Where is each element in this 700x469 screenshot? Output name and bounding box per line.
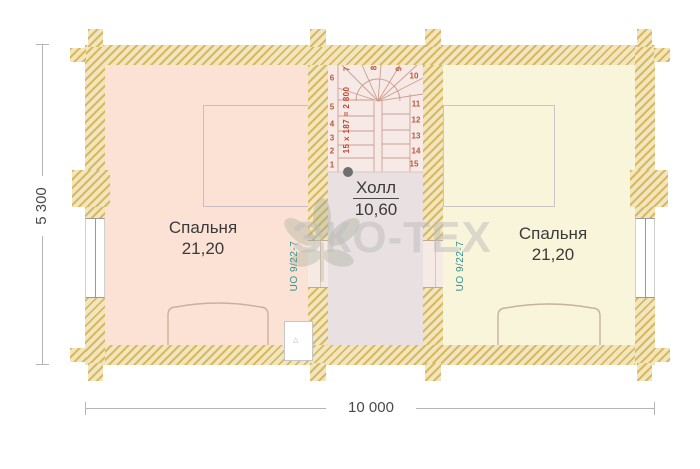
log-cross <box>70 348 86 362</box>
bed-left <box>168 303 268 345</box>
room-name: Холл <box>353 177 399 199</box>
dimension-label-vertical: 5 300 <box>34 176 50 236</box>
interior-wall-right-lower <box>423 288 443 345</box>
stair-step-number: 3 <box>330 134 334 143</box>
stair-formula-label: 15 x 187 = 2 800 <box>341 77 351 163</box>
room-label-bedroom-right: Спальня 21,20 <box>483 223 623 265</box>
log-cross <box>88 29 103 47</box>
stair-step-number: 8 <box>370 66 379 70</box>
stair-step-number: 6 <box>330 74 334 83</box>
log-cross <box>425 363 441 381</box>
room-area: 21,20 <box>532 245 575 264</box>
stair-step-number: 12 <box>412 116 421 125</box>
drain-icon: △ <box>293 336 298 344</box>
stair-step-number: 1 <box>330 161 334 170</box>
window-left <box>85 218 105 298</box>
stair-step-number: 15 <box>410 160 419 169</box>
log-cross <box>637 363 652 381</box>
stair-step-number: 11 <box>412 100 420 109</box>
dimension-tick <box>85 402 86 415</box>
room-label-bedroom-left: Спальня 21,20 <box>133 217 273 259</box>
room-name: Спальня <box>169 217 237 238</box>
wall-bottom <box>85 345 655 365</box>
stair-step-number: 13 <box>412 132 421 141</box>
interior-wall-left-upper <box>308 65 328 240</box>
log-cross <box>630 170 668 207</box>
bed-right <box>498 304 600 345</box>
log-cross <box>310 363 326 381</box>
room-area: 21,20 <box>182 239 225 258</box>
log-cross <box>654 48 670 62</box>
log-cross <box>425 29 441 47</box>
stair-step-number: 14 <box>412 147 421 156</box>
log-cross <box>88 363 103 381</box>
dimension-tick <box>36 364 49 365</box>
window-right <box>635 218 655 298</box>
door-opening-right <box>423 240 443 288</box>
interior-wall-right-upper <box>423 65 443 240</box>
floor-plan: △ Спальня 21,20 Холл 10,60 Спальня 21,20… <box>0 0 700 469</box>
newel-post <box>343 167 353 177</box>
stair-step-number: 4 <box>330 120 334 129</box>
door-opening-left <box>308 240 328 288</box>
room-area: 10,60 <box>355 200 398 219</box>
room-name: Спальня <box>519 223 587 244</box>
log-cross <box>310 29 326 47</box>
stair-step-number: 9 <box>395 67 404 71</box>
stair-step-number: 5 <box>330 103 334 112</box>
dimension-tick <box>654 402 655 415</box>
wall-top <box>85 45 655 65</box>
stair-step-number: 10 <box>410 72 419 81</box>
dimension-label-horizontal: 10 000 <box>326 400 416 416</box>
stair-step-number: 7 <box>343 67 352 71</box>
log-cross <box>637 29 652 47</box>
log-cross <box>70 48 86 62</box>
log-cross <box>72 170 110 207</box>
heating-label-right: UO 9/22-7 <box>454 231 466 301</box>
room-label-hall: Холл 10,60 <box>326 177 426 220</box>
dimension-tick <box>36 44 49 45</box>
shower-unit: △ <box>284 321 313 361</box>
stair-step-number: 2 <box>330 147 334 156</box>
heating-label-left: UO 9/22-7 <box>288 231 300 301</box>
log-cross <box>654 348 670 362</box>
